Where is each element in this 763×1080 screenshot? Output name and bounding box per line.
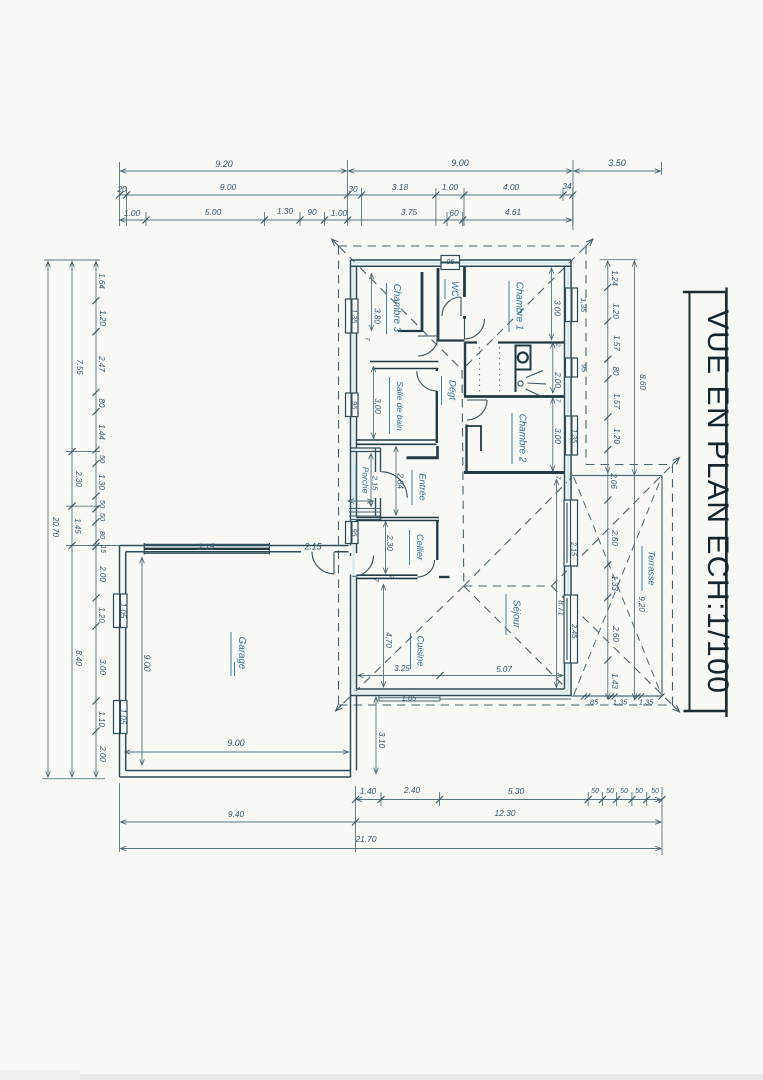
svg-text:3.00: 3.00 xyxy=(553,428,562,444)
svg-text:1.33: 1.33 xyxy=(610,575,619,591)
svg-text:7.55: 7.55 xyxy=(75,359,84,375)
svg-text:1.35: 1.35 xyxy=(350,309,359,324)
svg-text:80: 80 xyxy=(611,367,620,376)
svg-text:3.50: 3.50 xyxy=(608,158,626,168)
svg-text:9.00: 9.00 xyxy=(220,182,237,192)
svg-text:3.00: 3.00 xyxy=(98,659,107,675)
svg-text:3.80: 3.80 xyxy=(373,308,382,324)
svg-text:1.00: 1.00 xyxy=(331,208,348,218)
svg-text:1.43: 1.43 xyxy=(610,673,619,689)
svg-text:9.00: 9.00 xyxy=(451,158,469,168)
svg-text:50: 50 xyxy=(98,500,107,509)
svg-text:Cellier: Cellier xyxy=(415,534,425,561)
svg-text:WC: WC xyxy=(450,281,460,297)
svg-text:7: 7 xyxy=(372,578,379,582)
svg-text:Chambre 3: Chambre 3 xyxy=(391,284,402,333)
svg-text:3.75: 3.75 xyxy=(401,207,418,217)
svg-text:60: 60 xyxy=(449,208,459,218)
svg-text:VUE EN PLAN ECH:1/100: VUE EN PLAN ECH:1/100 xyxy=(701,310,734,695)
svg-text:3.00: 3.00 xyxy=(373,398,382,414)
svg-text:2: 2 xyxy=(554,342,561,347)
svg-text:3.10: 3.10 xyxy=(377,732,387,749)
svg-text:1.40: 1.40 xyxy=(360,786,377,796)
svg-text:3.00: 3.00 xyxy=(553,300,562,316)
svg-text:Garage: Garage xyxy=(236,637,247,670)
svg-text:21.70: 21.70 xyxy=(355,834,377,844)
svg-text:4.70: 4.70 xyxy=(384,632,393,648)
svg-text:80: 80 xyxy=(97,399,106,408)
svg-text:2.15: 2.15 xyxy=(371,475,380,491)
svg-text:Porche: Porche xyxy=(361,467,371,494)
svg-text:5.07: 5.07 xyxy=(496,665,512,674)
svg-text:2.00: 2.00 xyxy=(98,565,107,582)
svg-text:7: 7 xyxy=(388,575,395,579)
svg-text:90: 90 xyxy=(307,207,317,217)
svg-text:3.18: 3.18 xyxy=(392,182,409,192)
svg-text:12.30: 12.30 xyxy=(495,808,516,818)
svg-text:9.20: 9.20 xyxy=(215,159,233,169)
svg-text:1.35: 1.35 xyxy=(570,429,579,444)
svg-text:Salle de bain: Salle de bain xyxy=(395,381,405,431)
svg-text:1.30: 1.30 xyxy=(277,206,294,216)
svg-text:Chambre 2: Chambre 2 xyxy=(517,414,528,463)
svg-text:8.60: 8.60 xyxy=(638,374,647,390)
svg-text:1.30: 1.30 xyxy=(97,474,106,490)
svg-text:4.61: 4.61 xyxy=(505,207,521,217)
svg-text:95: 95 xyxy=(447,257,456,266)
svg-text:34: 34 xyxy=(562,181,572,191)
svg-text:50: 50 xyxy=(606,788,614,795)
svg-text:95: 95 xyxy=(350,529,359,538)
svg-text:7: 7 xyxy=(554,399,561,403)
svg-text:50: 50 xyxy=(591,788,599,795)
svg-text:15: 15 xyxy=(99,545,106,553)
svg-text:1.05: 1.05 xyxy=(119,603,128,619)
svg-text:2.60: 2.60 xyxy=(611,625,620,642)
svg-text:1.35: 1.35 xyxy=(613,698,628,707)
svg-text:80: 80 xyxy=(98,531,107,540)
svg-text:Terrasse: Terrasse xyxy=(647,551,657,586)
svg-text:.85: .85 xyxy=(588,698,599,707)
svg-text:1.10: 1.10 xyxy=(97,711,106,727)
svg-text:50: 50 xyxy=(635,788,643,795)
svg-text:30: 30 xyxy=(348,184,358,194)
svg-text:Dégt: Dégt xyxy=(447,380,458,400)
svg-text:2.40: 2.40 xyxy=(403,785,421,795)
svg-text:7: 7 xyxy=(364,337,371,341)
svg-text:9.00: 9.00 xyxy=(227,738,244,748)
svg-text:1.05: 1.05 xyxy=(119,709,128,725)
svg-text:50: 50 xyxy=(620,788,628,795)
svg-text:5.00: 5.00 xyxy=(205,207,222,217)
svg-text:2.45: 2.45 xyxy=(570,623,579,639)
svg-text:1.35: 1.35 xyxy=(639,698,654,707)
svg-text:50: 50 xyxy=(98,513,107,522)
svg-text:2.00: 2.00 xyxy=(553,371,562,388)
svg-text:2.84: 2.84 xyxy=(396,472,405,489)
svg-text:1.64: 1.64 xyxy=(97,273,106,289)
svg-text:95: 95 xyxy=(580,364,589,373)
svg-text:8.71: 8.71 xyxy=(557,600,566,616)
svg-text:8.40: 8.40 xyxy=(74,650,83,666)
svg-text:9.40: 9.40 xyxy=(228,809,245,819)
svg-text:1.45: 1.45 xyxy=(73,518,82,534)
svg-text:2.15: 2.15 xyxy=(196,542,214,552)
svg-text:9.20: 9.20 xyxy=(637,596,646,612)
svg-text:1.05: 1.05 xyxy=(402,694,417,703)
svg-text:1.20: 1.20 xyxy=(97,607,106,623)
svg-text:50: 50 xyxy=(651,788,659,795)
svg-text:2.30: 2.30 xyxy=(74,470,83,487)
svg-text:Cuisine: Cuisine xyxy=(416,636,426,667)
svg-text:3.25: 3.25 xyxy=(394,664,410,673)
svg-text:20.70: 20.70 xyxy=(51,516,60,538)
svg-text:1.44: 1.44 xyxy=(97,424,106,440)
svg-text:1.35: 1.35 xyxy=(579,298,588,313)
svg-text:9.00: 9.00 xyxy=(142,654,152,671)
svg-text:Chambre 1: Chambre 1 xyxy=(514,282,525,330)
svg-text:20: 20 xyxy=(116,184,127,194)
svg-text:2.60: 2.60 xyxy=(610,529,619,546)
svg-text:2.30: 2.30 xyxy=(385,534,394,551)
svg-text:2.06: 2.06 xyxy=(609,472,618,489)
svg-text:5.30: 5.30 xyxy=(508,786,525,796)
svg-text:2.47: 2.47 xyxy=(97,355,106,372)
svg-text:2.15: 2.15 xyxy=(303,542,321,552)
svg-text:1.20: 1.20 xyxy=(612,428,621,444)
svg-text:1.57: 1.57 xyxy=(612,393,621,409)
svg-text:2.15: 2.15 xyxy=(570,541,579,557)
svg-text:Séjour: Séjour xyxy=(511,600,522,629)
svg-text:4.00: 4.00 xyxy=(503,182,520,192)
svg-text:1.24: 1.24 xyxy=(610,270,619,286)
svg-text:7: 7 xyxy=(554,476,561,480)
svg-text:50: 50 xyxy=(98,455,107,464)
svg-text:1.20: 1.20 xyxy=(98,310,107,326)
svg-text:95: 95 xyxy=(350,401,359,410)
svg-text:1.00: 1.00 xyxy=(124,208,141,218)
svg-text:2.00: 2.00 xyxy=(98,745,107,762)
svg-text:Entrée: Entrée xyxy=(418,473,428,500)
svg-text:1.57: 1.57 xyxy=(612,335,621,351)
svg-text:1.00: 1.00 xyxy=(442,182,459,192)
svg-text:1.20: 1.20 xyxy=(611,303,620,319)
